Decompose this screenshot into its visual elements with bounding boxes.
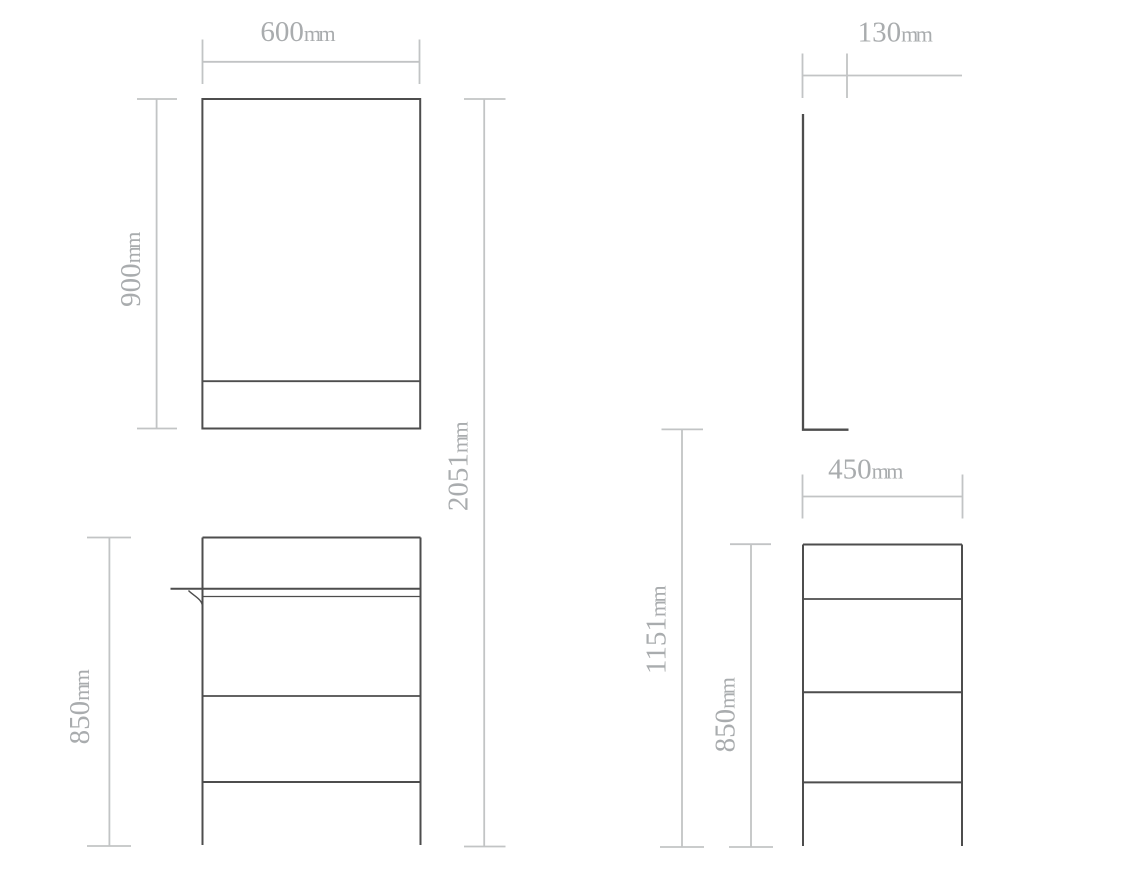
svg-text:850mm: 850mm	[710, 677, 742, 752]
svg-text:1151mm: 1151mm	[641, 586, 673, 675]
svg-text:450mm: 450mm	[828, 454, 903, 486]
svg-text:2051mm: 2051mm	[443, 422, 475, 512]
svg-text:850mm: 850mm	[64, 669, 96, 744]
svg-text:600mm: 600mm	[260, 16, 335, 48]
svg-text:900mm: 900mm	[115, 232, 147, 307]
svg-text:130mm: 130mm	[858, 17, 933, 49]
